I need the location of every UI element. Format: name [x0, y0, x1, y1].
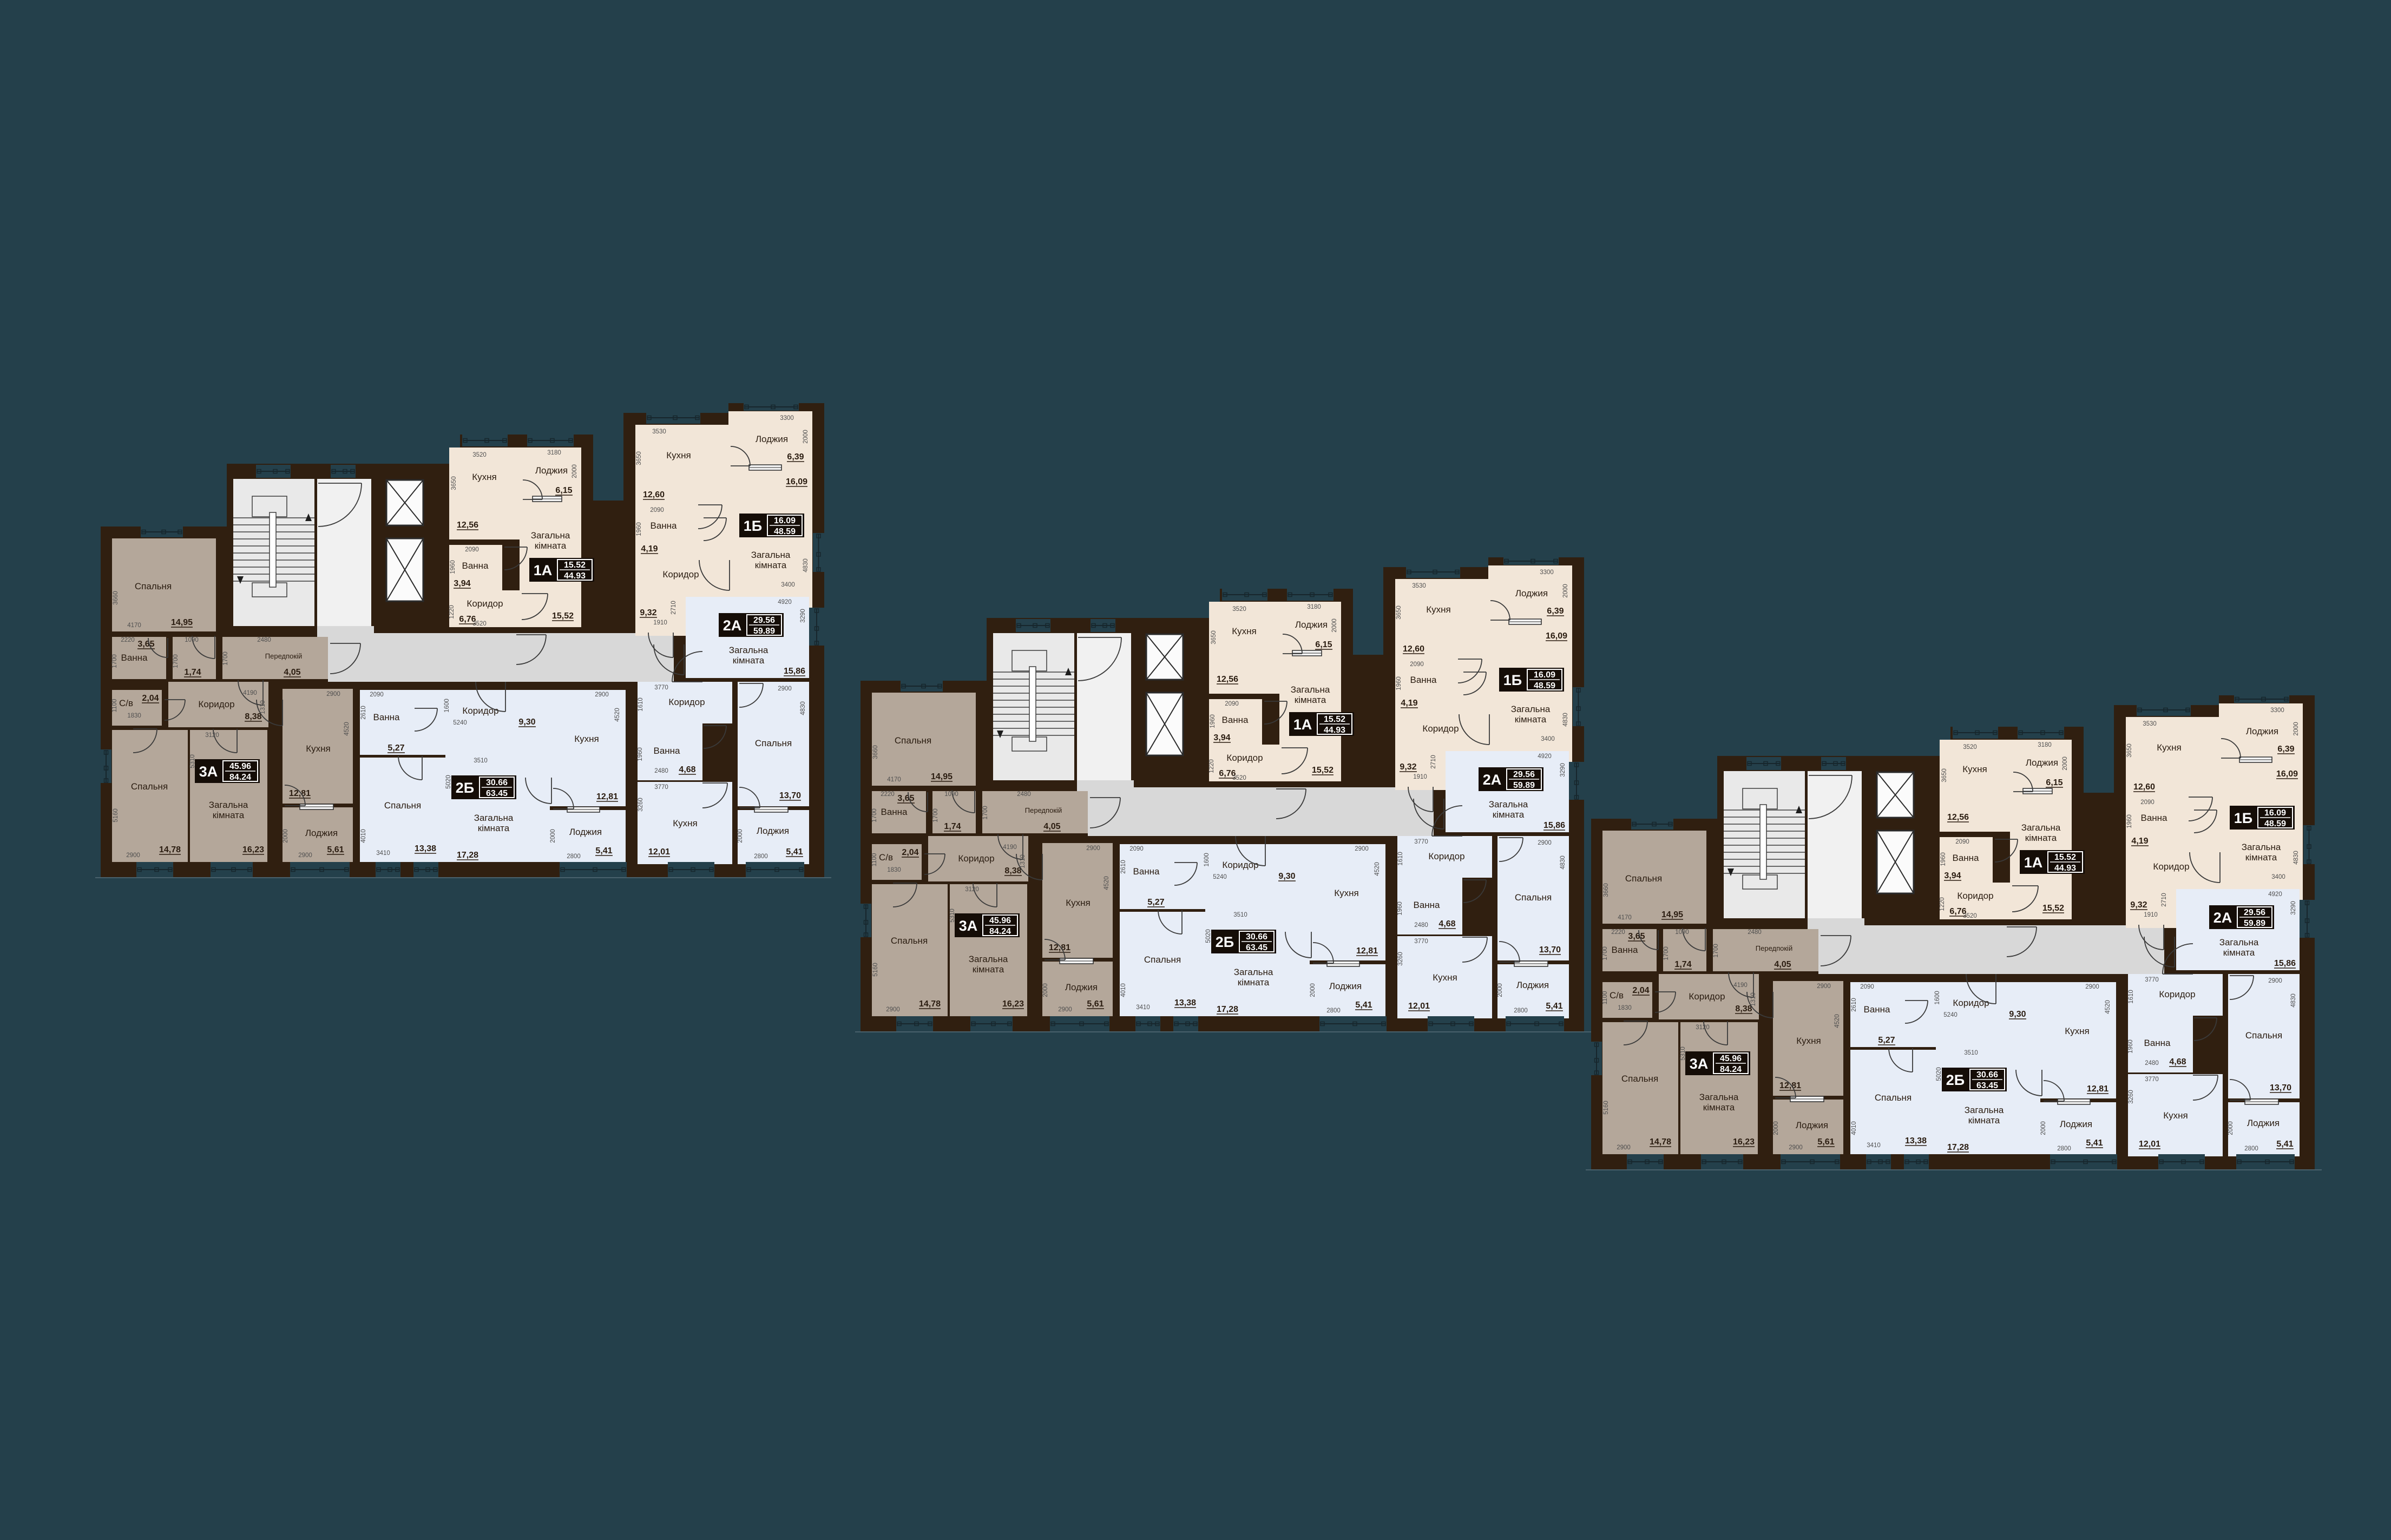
- apartment-badge-2a[interactable]: 2А29.5659.89: [2209, 905, 2274, 929]
- room-label: Ванна: [1952, 853, 1979, 863]
- window-icon: [1406, 566, 1460, 578]
- apartment-total-area: 59.89: [2244, 919, 2265, 928]
- dimension-label: 3660: [113, 591, 119, 605]
- room-area: 16,09: [1546, 631, 1567, 641]
- dimension-label: 1960: [2126, 814, 2133, 828]
- room-label: Спальня: [891, 936, 928, 946]
- room-kitchen-2b: Кухня12,81: [2040, 982, 2116, 1098]
- apartment-total-area: 48.59: [2264, 819, 2286, 828]
- dimension-label: 2900: [2085, 984, 2099, 990]
- dimension-label: 3180: [547, 450, 561, 456]
- dimension-label: 3260: [638, 798, 644, 812]
- room-floor: [872, 884, 948, 1016]
- dimension-label: 2000: [2293, 722, 2300, 736]
- room-bath-2a: Ванна4,68: [638, 723, 702, 780]
- room-label: Ванна: [653, 746, 680, 756]
- inner-window-icon: [2239, 757, 2272, 762]
- apartment-living-area: 45.96: [1720, 1054, 1742, 1063]
- room-area: 5,41: [2086, 1138, 2103, 1148]
- room-area: 1,74: [184, 668, 201, 677]
- room-area: 16,09: [2276, 769, 2298, 779]
- room-label: Загальнакімната: [2021, 822, 2061, 843]
- dimension-label: 1700: [1602, 946, 1608, 960]
- dimension-label: 4830: [803, 558, 809, 572]
- apartment-living-area: 30.66: [486, 778, 508, 787]
- dimension-label: 2800: [754, 853, 768, 860]
- dimension-label: 3180: [1307, 604, 1321, 610]
- room-loggia-1b: Лоджия6,39: [728, 411, 812, 468]
- dimension-label: 1910: [1413, 774, 1427, 780]
- room-label: С/в: [1610, 990, 1624, 1001]
- room-kitchen-2b: Кухня12,81: [550, 690, 626, 806]
- room-label: Кухня: [306, 743, 331, 754]
- dimension-label: 1220: [449, 605, 455, 619]
- dimension-label: 2000: [1310, 983, 1316, 997]
- elevator-icon: [1146, 634, 1183, 680]
- room-living-2a: Загальнакімната15,86: [2176, 889, 2300, 970]
- elevator-icon: [1877, 831, 1914, 893]
- dimension-label: 1960: [1210, 714, 1216, 728]
- window-icon: [1091, 619, 1115, 632]
- room-area: 12,81: [2087, 1084, 2108, 1094]
- dimension-label: 2800: [1326, 1008, 1341, 1014]
- dimension-label: 2900: [1617, 1144, 1631, 1151]
- room-area: 5,41: [786, 847, 803, 857]
- apartment-badge-3a[interactable]: 3А45.9684.24: [1685, 1051, 1750, 1075]
- window-icon: [1591, 1042, 1602, 1075]
- dimension-label: 4520: [344, 722, 350, 736]
- room-area: 8,38: [245, 712, 261, 721]
- dimension-label: 4170: [887, 776, 901, 783]
- window-icon: [1627, 1154, 1664, 1169]
- apartment-living-area: 45.96: [989, 916, 1011, 925]
- dimension-label: 1960: [636, 522, 642, 536]
- room-area: 3,94: [1944, 871, 1961, 880]
- dimension-label: 2610: [360, 706, 367, 720]
- room-label: Загальнакімната: [1234, 967, 1273, 988]
- window-icon: [1050, 1016, 1109, 1031]
- window-icon: [1631, 819, 1673, 830]
- apartment-total-area: 63.45: [486, 789, 508, 798]
- window-icon: [1746, 757, 1781, 770]
- dimension-label: 2800: [1514, 1008, 1528, 1014]
- dimension-label: 5020: [1936, 1067, 1942, 1081]
- room-floor: [360, 690, 413, 755]
- dimension-label: 3120: [205, 732, 219, 739]
- dimension-label: 1910: [653, 620, 667, 626]
- room-area: 12,01: [648, 847, 670, 857]
- dimension-label: 4010: [360, 829, 367, 843]
- dimension-label: 2900: [2268, 978, 2282, 984]
- inner-window-icon: [2058, 1099, 2090, 1104]
- window-icon: [1866, 1154, 1891, 1169]
- room-area: 8,38: [1004, 866, 1021, 876]
- room-area: 12,81: [289, 789, 311, 798]
- room-label: Коридор: [2153, 861, 2189, 872]
- dimension-label: 2480: [1017, 791, 1031, 798]
- room-area: 6,15: [1315, 640, 1332, 649]
- apartment-badge-2a[interactable]: 2А29.5659.89: [1479, 767, 1543, 791]
- room-loggia-2a: Лоджия5,41: [738, 810, 809, 864]
- dimension-label: 4520: [1103, 876, 1110, 890]
- dimension-label: 4520: [1834, 1014, 1841, 1028]
- dimension-label: 1700: [1663, 946, 1670, 960]
- room-area: 12,60: [643, 490, 665, 499]
- room-floor: [2040, 982, 2116, 1098]
- room-label: Спальня: [2245, 1030, 2282, 1041]
- dimension-label: 1700: [173, 654, 179, 668]
- window-icon: [746, 862, 804, 877]
- room-loggia-1b: Лоджия6,39: [1488, 565, 1572, 622]
- room-area: 5,27: [1147, 898, 1164, 907]
- room-label: Лоджия: [2060, 1119, 2092, 1129]
- room-bedroom-2a: Спальня13,70: [2228, 974, 2300, 1098]
- window-icon: [290, 862, 350, 877]
- room-bath-1b: Ванна4,19: [1395, 657, 1462, 714]
- dimension-label: 2000: [283, 829, 289, 843]
- room-label: Ванна: [1611, 945, 1638, 955]
- apartment-id: 1Б: [1503, 672, 1522, 688]
- dimension-label: 3770: [1414, 938, 1428, 945]
- room-label: Загальнакімната: [969, 954, 1008, 975]
- dimension-label: 2090: [650, 507, 664, 514]
- room-wc-3a: С/в2,04: [112, 690, 162, 726]
- room-area: 4,68: [2169, 1057, 2186, 1067]
- window-icon: [2234, 695, 2289, 703]
- dimension-label: 3770: [654, 685, 668, 691]
- room-label: Ванна: [650, 521, 677, 531]
- dimension-label: 1220: [1208, 759, 1215, 773]
- dimension-label: 3530: [2143, 721, 2157, 727]
- dimension-label: 2900: [1086, 845, 1100, 852]
- room-label: Передпокій: [1756, 944, 1792, 952]
- room-label: Коридор: [668, 697, 705, 707]
- window-icon: [413, 862, 438, 877]
- room-bath-2a: Ванна4,68: [2128, 1016, 2193, 1072]
- dimension-label: 4190: [1733, 982, 1748, 989]
- elevator-lobby: [1077, 633, 1131, 780]
- room-label: Лоджия: [305, 828, 338, 838]
- room-label: Лоджия: [569, 827, 602, 837]
- dimension-label: 3120: [1696, 1024, 1710, 1031]
- room-area: 5,61: [1817, 1137, 1834, 1147]
- room-area: 12,81: [1049, 943, 1070, 952]
- apartment-id: 2Б: [1946, 1072, 1965, 1088]
- apartment-badge-1b[interactable]: 1Б16.0948.59: [739, 514, 804, 537]
- dimension-label: 4920: [1538, 753, 1552, 760]
- room-label: Спальня: [1621, 1074, 1658, 1084]
- dimension-label: 3510: [1233, 912, 1247, 918]
- apartment-id: 2А: [2213, 910, 2232, 926]
- dimension-label: 1100: [1602, 991, 1608, 1005]
- room-area: 4,19: [1401, 699, 1417, 708]
- window-icon: [2236, 1154, 2295, 1169]
- apartment-id: 2А: [723, 617, 742, 634]
- dimension-label: 2800: [567, 853, 581, 860]
- room-area: 2,04: [1632, 986, 1649, 995]
- room-area: 12,56: [1947, 813, 1969, 822]
- room-wc-3a: С/в2,04: [1602, 982, 1652, 1018]
- dimension-label: 2710: [1430, 755, 1437, 769]
- room-area: 12,01: [1408, 1002, 1430, 1011]
- room-floor: [2193, 795, 2219, 852]
- room-living-3a: Загальнакімната16,23: [190, 730, 267, 862]
- room-label: Коридор: [1953, 998, 1989, 1008]
- dimension-label: 3520: [1963, 913, 1977, 919]
- room-area: 5,27: [387, 743, 404, 753]
- dimension-label: 3660: [872, 745, 879, 759]
- room-label: Спальня: [895, 735, 931, 746]
- apartment-living-area: 29.56: [753, 616, 775, 625]
- dimension-label: 3530: [652, 429, 666, 435]
- window-icon: [813, 533, 824, 572]
- dimension-label: 2900: [1538, 840, 1552, 846]
- room-bedroom-2b: Спальня13,38: [360, 758, 445, 862]
- dimension-label: 5240: [1943, 1012, 1958, 1018]
- room-bedroom-2a: Спальня13,70: [1497, 836, 1569, 960]
- window-icon: [901, 681, 943, 692]
- room-floor: [112, 730, 188, 862]
- dimension-label: 1960: [1940, 852, 1947, 866]
- dimension-label: 3660: [1603, 883, 1610, 897]
- apartment-living-area: 15.52: [564, 561, 586, 570]
- room-area: 6,39: [2277, 745, 2294, 754]
- room-bath-1b: Ванна4,19: [2126, 795, 2193, 852]
- room-label: Лоджия: [1329, 981, 1362, 991]
- dimension-label: 3510: [474, 758, 488, 764]
- window-icon: [744, 403, 799, 411]
- room-area: 13,70: [1539, 945, 1561, 955]
- room-loggia-2a: Лоджия5,41: [1497, 964, 1569, 1018]
- dimension-label: 3530: [1412, 583, 1426, 589]
- dimension-label: 5020: [445, 775, 452, 789]
- dimension-label: 5160: [1603, 1101, 1610, 1115]
- dimension-label: 2900: [126, 852, 140, 859]
- dimension-label: 1960: [1397, 901, 1403, 916]
- dimension-label: 1610: [2128, 990, 2134, 1004]
- dimension-label: 1100: [111, 699, 118, 713]
- window-icon: [2050, 1154, 2117, 1169]
- apartment-total-area: 63.45: [1246, 943, 1267, 952]
- dimension-label: 3770: [2145, 1076, 2159, 1083]
- room-label: Кухня: [666, 450, 691, 460]
- room-living-2b: Загальнакімната17,28: [1936, 1047, 2040, 1154]
- room-loggia-3a: Лоджия5,61: [1773, 1100, 1843, 1154]
- room-area: 9,32: [1400, 762, 1416, 772]
- dimension-label: 2610: [1851, 998, 1857, 1012]
- dimension-label: 3650: [1211, 630, 1217, 644]
- elevator-icon: [1877, 772, 1914, 818]
- dimension-label: 5240: [1213, 874, 1227, 880]
- room-label: Ванна: [1410, 675, 1437, 685]
- apartment-id: 1А: [534, 562, 553, 578]
- dimension-label: 4190: [243, 690, 257, 696]
- apartment-id: 1Б: [744, 518, 762, 534]
- dimension-label: 3650: [1396, 606, 1402, 620]
- dimension-label: 2220: [1611, 929, 1625, 936]
- room-loggia-3a: Лоджия5,61: [283, 807, 353, 862]
- dimension-label: 1830: [1618, 1005, 1632, 1011]
- room-area: 14,78: [919, 999, 941, 1009]
- dimension-label: 5020: [1205, 929, 1212, 943]
- apartment-badge-2b[interactable]: 2Б30.6663.45: [451, 775, 516, 799]
- dimension-label: 3400: [1541, 736, 1555, 742]
- apartment-badge-1b[interactable]: 1Б16.0948.59: [1499, 668, 1564, 692]
- room-label: Загальнакімната: [2219, 937, 2259, 958]
- room-living-2a: Загальнакімната15,86: [686, 597, 809, 678]
- dimension-label: 3520: [1232, 606, 1246, 613]
- dimension-label: 3520: [472, 452, 487, 458]
- room-corridor-3a: Коридор8,38: [1659, 974, 1759, 1019]
- room-label: Лоджия: [1796, 1120, 1828, 1130]
- apartment-badge-1b[interactable]: 1Б16.0948.59: [2230, 806, 2295, 830]
- room-area: 2,04: [142, 694, 159, 703]
- room-bedroom-2b: Спальня13,38: [1850, 1050, 1936, 1154]
- window-icon: [1319, 1016, 1387, 1031]
- room-area: 5,61: [327, 845, 344, 854]
- apartment-badge-2b[interactable]: 2Б30.6663.45: [1211, 930, 1276, 953]
- room-label: Кухня: [1962, 764, 1987, 774]
- inner-window-icon: [749, 465, 781, 470]
- room-label: С/в: [879, 852, 893, 863]
- apartment-badge-3a[interactable]: 3А45.9684.24: [195, 759, 260, 783]
- dimension-label: 2900: [1058, 1006, 1072, 1013]
- window-icon: [1573, 687, 1584, 726]
- apartment-badge-3a[interactable]: 3А45.9684.24: [955, 913, 1020, 937]
- room-label: Ванна: [462, 561, 489, 571]
- room-floor: [550, 690, 626, 806]
- room-bedroom-2a: Спальня13,70: [738, 682, 809, 806]
- room-label: Загальнакімната: [1699, 1092, 1739, 1113]
- dimension-label: 3290: [800, 609, 806, 623]
- room-floor: [950, 884, 1027, 1016]
- window-icon: [1904, 1154, 1929, 1169]
- window-icon: [1821, 757, 1846, 770]
- room-kitchen-1b: Кухня12,60: [635, 425, 728, 503]
- dimension-label: 4830: [2293, 851, 2300, 865]
- room-kitchen-1b: Кухня12,60: [1395, 579, 1488, 657]
- window-icon: [1506, 1016, 1564, 1031]
- apartment-id: 2Б: [1216, 934, 1234, 950]
- dimension-label: 2710: [2161, 893, 2167, 907]
- apartment-badge-1a[interactable]: 1А15.5244.93: [2020, 850, 2085, 874]
- elevator-icon: [386, 538, 423, 601]
- room-area: 3,65: [1628, 932, 1645, 941]
- room-floor: [190, 730, 267, 862]
- window-icon: [896, 1016, 933, 1031]
- room-label: Загальнакімната: [1965, 1105, 2004, 1126]
- window-icon: [646, 412, 700, 424]
- dimension-label: 1090: [185, 637, 199, 643]
- room-area: 8,38: [1735, 1004, 1752, 1013]
- apartment-id: 3А: [959, 918, 978, 934]
- room-label: Кухня: [574, 734, 599, 744]
- room-area: 15,52: [1312, 766, 1334, 775]
- room-label: Лоджия: [2246, 726, 2278, 736]
- apartment-badge-2a[interactable]: 2А29.5659.89: [719, 613, 784, 637]
- room-label: Кухня: [1426, 604, 1451, 615]
- dimension-label: 3770: [1414, 839, 1428, 845]
- common-corridor: [1088, 787, 1434, 836]
- room-floor: [1310, 844, 1385, 960]
- dimension-label: 2000: [737, 829, 744, 843]
- apartment-badge-2b[interactable]: 2Б30.6663.45: [1942, 1068, 2007, 1091]
- dimension-label: 2800: [2057, 1146, 2071, 1152]
- room-area: 16,23: [1733, 1137, 1755, 1147]
- dimension-label: 2900: [778, 686, 792, 692]
- dimension-label: 2000: [550, 829, 556, 843]
- window-icon: [211, 862, 253, 877]
- dimension-label: 5160: [113, 808, 119, 822]
- apartment-living-area: 16.09: [2264, 808, 2286, 818]
- room-area: 5,41: [595, 846, 612, 855]
- room-area: 1,74: [944, 822, 961, 831]
- room-label: Спальня: [755, 738, 792, 748]
- room-label: Кухня: [2065, 1026, 2090, 1036]
- dimension-label: 3300: [2270, 707, 2284, 714]
- room-label: Кухня: [1066, 898, 1091, 908]
- room-label: Спальня: [1625, 873, 1662, 884]
- dimension-label: 1700: [982, 806, 989, 820]
- apartment-total-area: 48.59: [774, 527, 796, 536]
- dimension-label: 1830: [127, 713, 141, 719]
- room-area: 16,09: [786, 477, 807, 486]
- dimension-label: 2800: [2244, 1146, 2258, 1152]
- room-label: Ванна: [1863, 1004, 1890, 1015]
- room-loggia-2a: Лоджия5,41: [2228, 1102, 2300, 1156]
- room-area: 14,95: [931, 772, 953, 781]
- window-icon: [2158, 1154, 2205, 1169]
- dimension-label: 1700: [932, 808, 939, 822]
- room-label: Загальнакімната: [729, 645, 768, 666]
- dimension-label: 3260: [2128, 1090, 2134, 1104]
- room-kitchen-1a: Кухня12,56: [449, 447, 520, 539]
- floorplan-canvas: Кухня12,56Лоджия6,15Загальнакімната15,52…: [0, 0, 2391, 1540]
- room-area: 13,38: [415, 844, 436, 853]
- dimension-label: 2480: [1414, 922, 1428, 929]
- room-area: 12,56: [1217, 675, 1238, 684]
- room-bath-2b: Ванна5,27: [360, 690, 413, 755]
- room-label: С/в: [119, 698, 133, 708]
- dimension-label: 2090: [1860, 984, 1874, 990]
- dimension-label: 2000: [803, 430, 809, 444]
- room-area: 6,39: [787, 452, 804, 462]
- apartment-badge-1a[interactable]: 1А15.5244.93: [1289, 712, 1354, 736]
- room-label: Ванна: [373, 712, 400, 722]
- room-bedroom-3a-2: Спальня14,78: [112, 730, 188, 862]
- apartment-badge-1a[interactable]: 1А15.5244.93: [529, 558, 594, 582]
- room-label: Кухня: [472, 472, 497, 482]
- room-area: 14,95: [171, 618, 193, 627]
- dimension-label: 1310: [1020, 854, 1026, 868]
- inner-window-icon: [2023, 788, 2052, 794]
- apartment-total-area: 59.89: [1513, 781, 1535, 790]
- window-icon: [2137, 704, 2191, 716]
- inner-window-icon: [1292, 650, 1322, 656]
- window-icon: [1173, 1016, 1198, 1031]
- room-bedroom-3a-2: Спальня14,78: [872, 884, 948, 1016]
- dimension-label: 1700: [222, 651, 229, 666]
- window-icon: [256, 465, 291, 478]
- room-floor: [686, 597, 809, 678]
- room-area: 12,01: [2139, 1140, 2160, 1149]
- room-floor: [1120, 844, 1173, 909]
- window-icon: [2018, 727, 2064, 739]
- room-label: Загальнакімната: [2242, 842, 2281, 863]
- dimension-label: 2000: [1331, 618, 1338, 633]
- room-entry-hall-3a: Передпокій4,05: [222, 637, 328, 679]
- inner-window-icon: [533, 496, 562, 502]
